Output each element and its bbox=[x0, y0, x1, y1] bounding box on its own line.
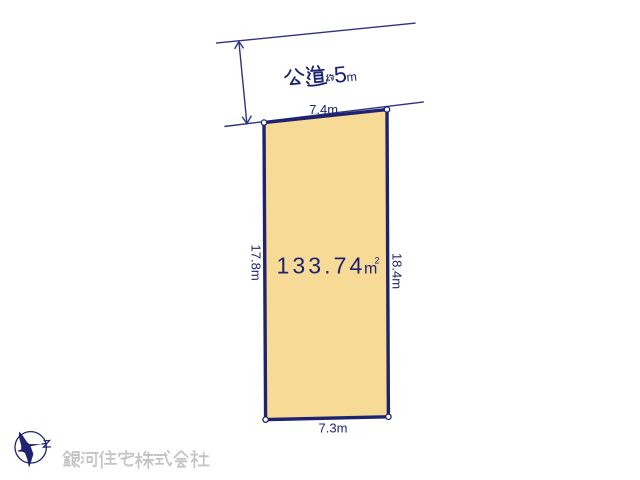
svg-text:17.8m: 17.8m bbox=[248, 245, 263, 281]
svg-text:2: 2 bbox=[375, 256, 380, 266]
svg-text:7.4m: 7.4m bbox=[309, 102, 338, 117]
svg-text:7.3m: 7.3m bbox=[319, 421, 348, 436]
svg-text:m: m bbox=[346, 70, 358, 85]
svg-text:133.74: 133.74 bbox=[277, 253, 366, 279]
svg-text:18.4m: 18.4m bbox=[389, 253, 404, 289]
